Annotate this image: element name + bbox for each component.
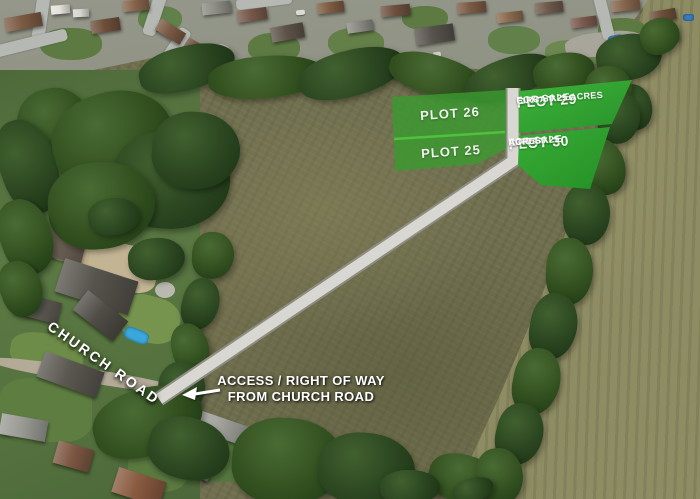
plot-30-size-2: ACRES <box>508 135 542 148</box>
left-arrow-icon <box>182 384 222 402</box>
access-note-line1: ACCESS / RIGHT OF WAY <box>212 373 390 389</box>
access-note: ACCESS / RIGHT OF WAY FROM CHURCH ROAD <box>212 373 390 405</box>
aerial-map: PLOT 26 PLOT 25 PLOT 29 FOR SALE CIRCA 0… <box>0 0 700 499</box>
plot-overlay <box>0 0 700 499</box>
access-note-line2: FROM CHURCH ROAD <box>212 389 390 405</box>
